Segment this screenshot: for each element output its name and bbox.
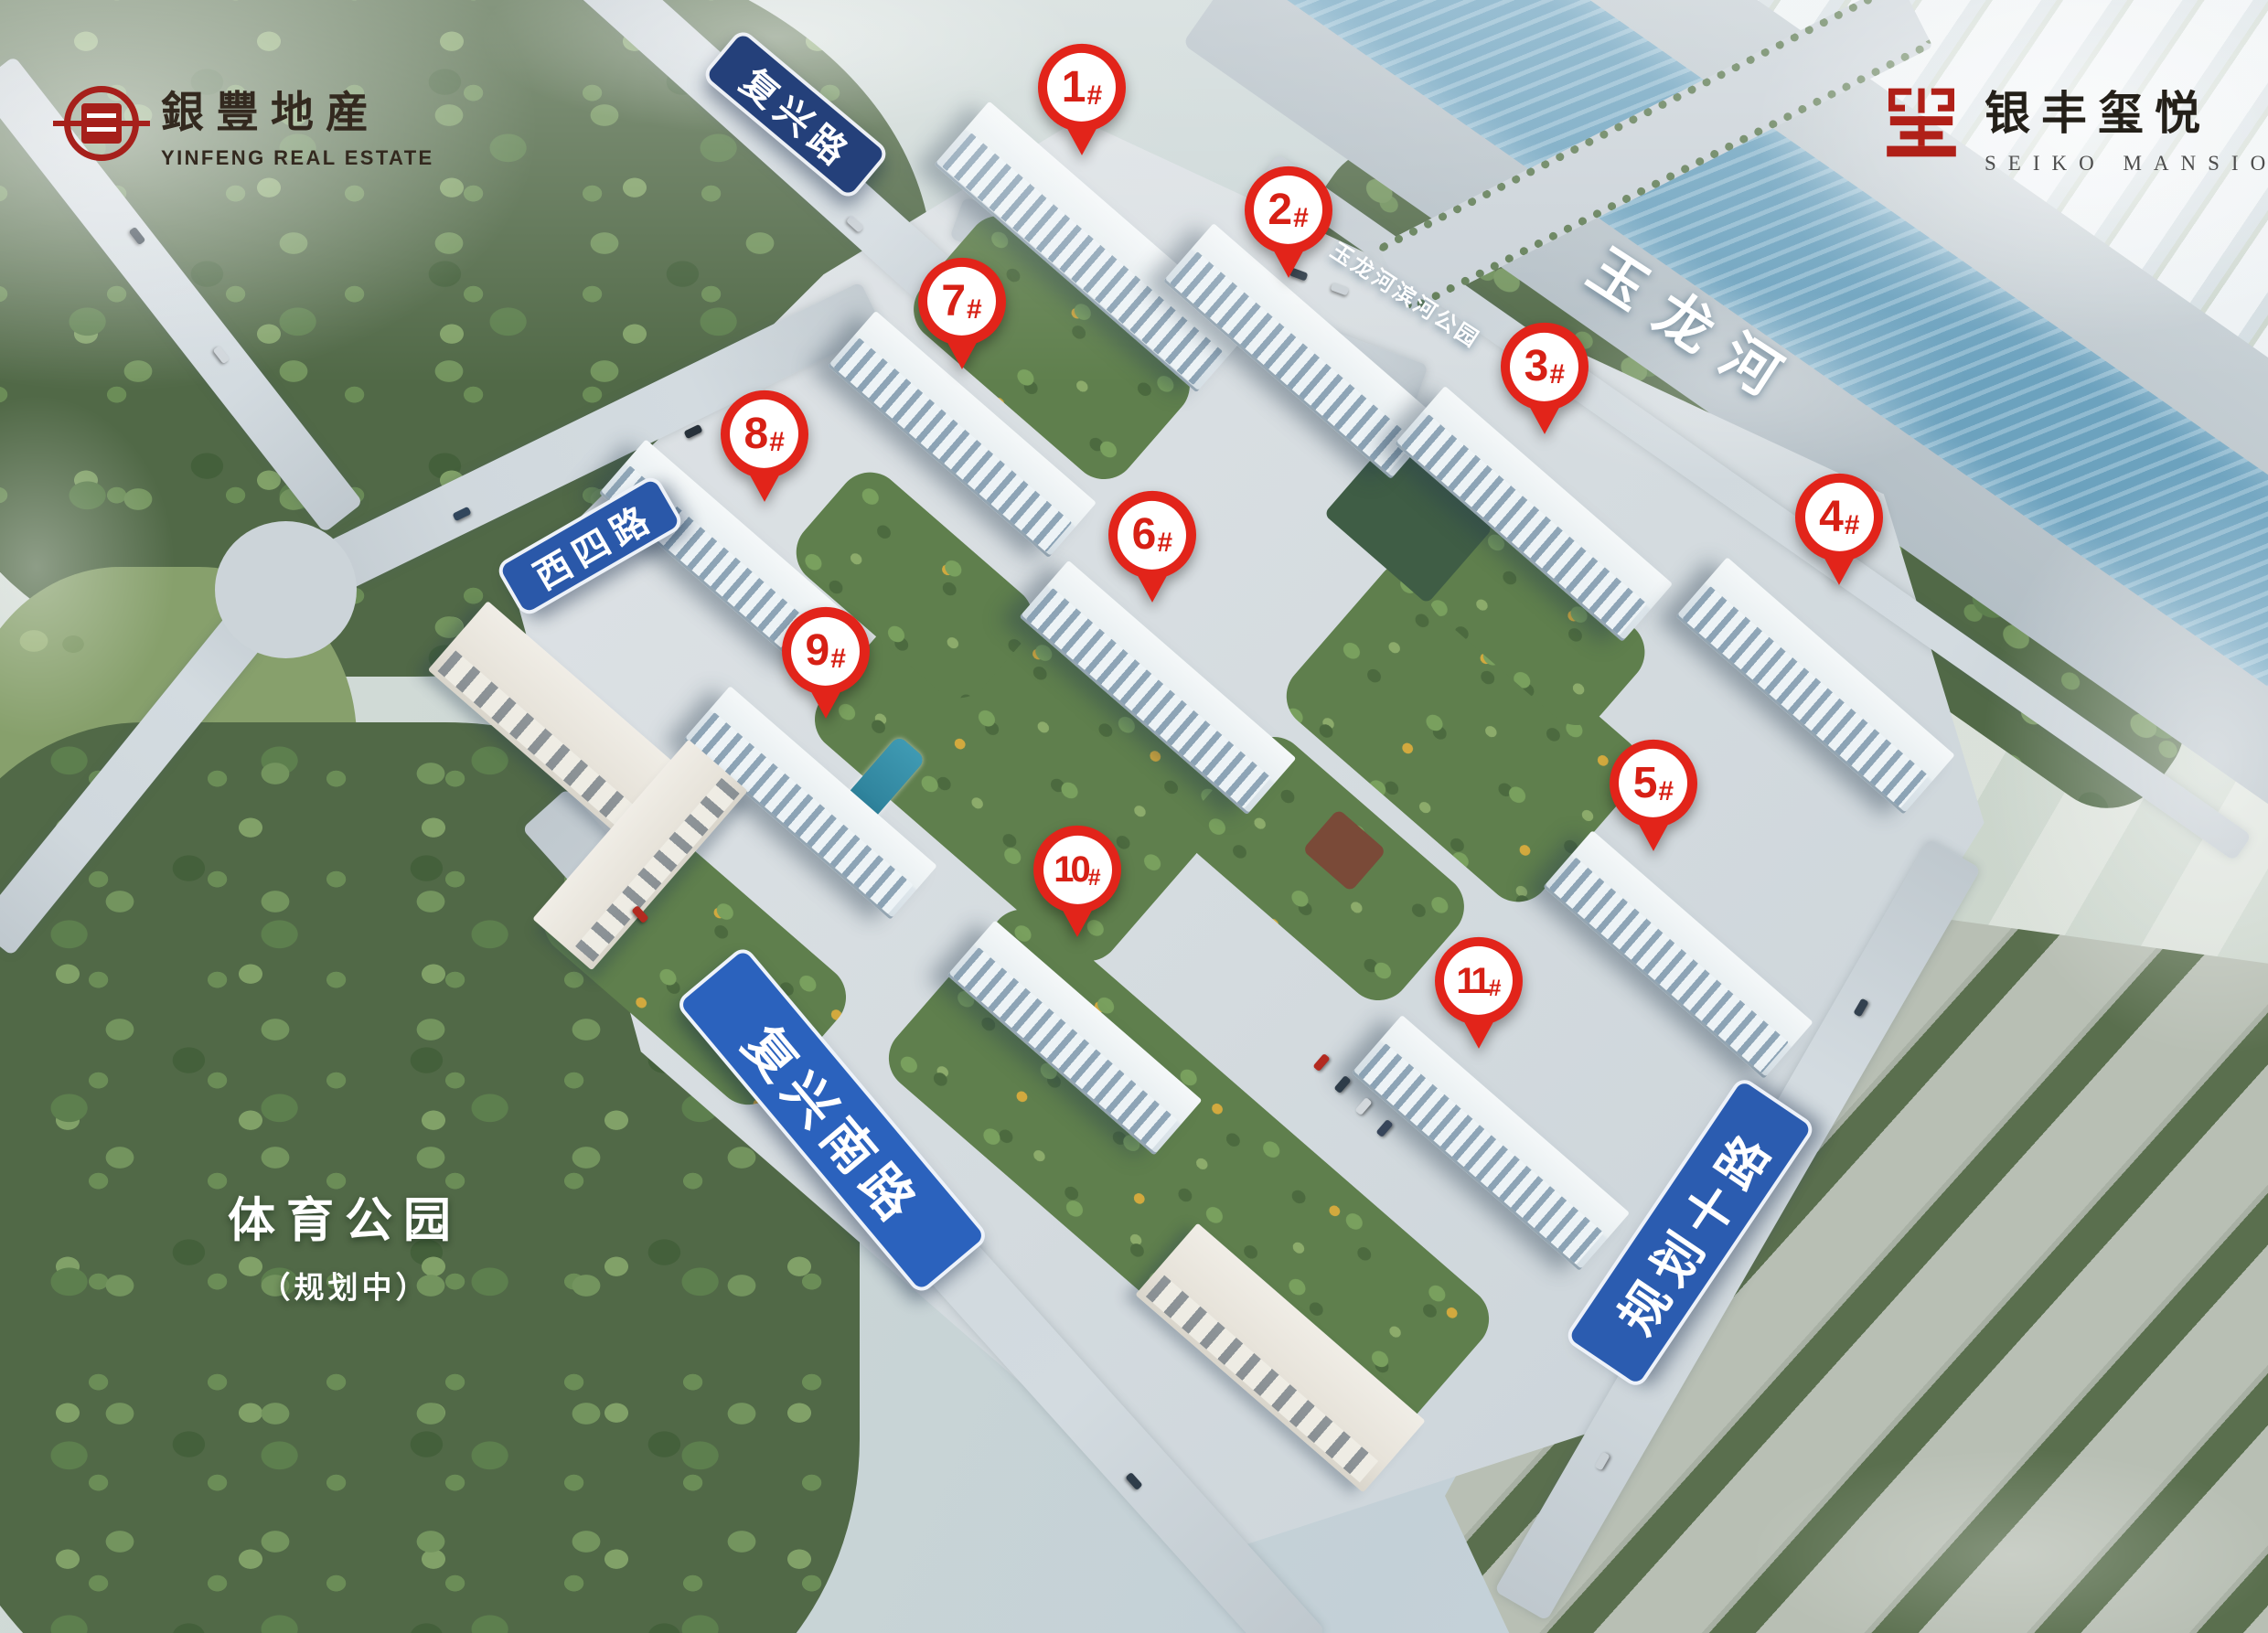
building-marker-5[interactable]: 5# [1610,740,1697,851]
building-marker-4[interactable]: 4# [1795,473,1883,584]
marker-face: 6# [1118,501,1186,570]
marker-hash-suffix: # [1845,511,1860,539]
marker-number: 4 [1819,495,1844,539]
marker-face: 4# [1805,483,1874,551]
marker-face: 2# [1254,176,1322,244]
marker-face: 10# [1043,836,1112,904]
marker-number: 9 [806,629,830,673]
building-marker-8[interactable]: 8# [721,390,808,501]
marker-hash-suffix: # [1086,82,1102,110]
marker-number: 5 [1633,762,1658,806]
sports-park-label: 体育公园 （规划中） [228,1181,462,1307]
xiyue-seal-icon [1880,85,1963,167]
sports-park-title: 体育公园 [228,1181,462,1250]
marker-number: 10 [1054,851,1087,888]
marker-balloon: 6# [1108,491,1196,579]
marker-face: 3# [1510,333,1578,401]
marker-hash-suffix: # [1658,778,1674,806]
sports-park-subtitle: （规划中） [228,1263,462,1307]
marker-balloon: 3# [1501,323,1589,411]
marker-number: 2 [1268,188,1292,232]
project-name-en: SEIKO MANSION [1984,152,2268,176]
marker-hash-suffix: # [1157,529,1172,557]
marker-face: 11# [1444,946,1513,1015]
marker-hash-suffix: # [830,646,846,673]
building-marker-2[interactable]: 2# [1245,166,1332,278]
marker-hash-suffix: # [967,296,982,324]
marker-number: 8 [744,411,769,455]
marker-face: 9# [791,616,860,685]
marker-hash-suffix: # [769,428,785,455]
developer-name-en: YINFENG REAL ESTATE [161,146,434,170]
marker-number: 11 [1456,963,1487,999]
building-marker-3[interactable]: 3# [1501,323,1589,434]
marker-number: 3 [1524,345,1549,389]
marker-hash-suffix: # [1549,361,1565,389]
marker-face: 7# [927,267,996,336]
project-logo: 银丰玺悦 SEIKO MANSION [1880,77,2268,176]
developer-name-cn: 銀豐地産 [161,77,434,140]
building-marker-9[interactable]: 9# [782,607,870,719]
project-name-cn: 银丰玺悦 [1984,77,2268,143]
marker-balloon: 8# [721,390,808,477]
marker-number: 1 [1062,66,1086,110]
marker-hash-suffix: # [1489,977,1502,1000]
building-marker-1[interactable]: 1# [1038,44,1126,155]
marker-balloon: 11# [1435,937,1523,1025]
marker-hash-suffix: # [1088,867,1101,890]
marker-balloon: 10# [1033,826,1121,913]
marker-face: 8# [730,400,798,468]
marker-balloon: 4# [1795,473,1883,560]
road-intersection [215,521,357,658]
marker-face: 5# [1619,749,1687,817]
marker-balloon: 9# [782,607,870,695]
building-marker-11[interactable]: 11# [1435,937,1523,1049]
marker-balloon: 1# [1038,44,1126,132]
developer-logo: 銀豐地産 YINFENG REAL ESTATE [64,77,434,170]
marker-balloon: 5# [1610,740,1697,827]
marker-number: 6 [1132,513,1157,557]
building-marker-6[interactable]: 6# [1108,491,1196,603]
marker-balloon: 2# [1245,166,1332,254]
marker-number: 7 [941,280,966,324]
marker-balloon: 7# [918,258,1006,346]
marker-hash-suffix: # [1293,205,1309,232]
building-marker-7[interactable]: 7# [918,258,1006,369]
yinfeng-seal-icon [64,86,139,161]
building-marker-10[interactable]: 10# [1033,826,1121,937]
marker-face: 1# [1047,53,1116,122]
site-plan-rendering: 复兴路西四路复兴南路规划十路玉龙河玉龙河滨河公园1#2#3#4#5#6#7#8#… [0,0,2268,1633]
